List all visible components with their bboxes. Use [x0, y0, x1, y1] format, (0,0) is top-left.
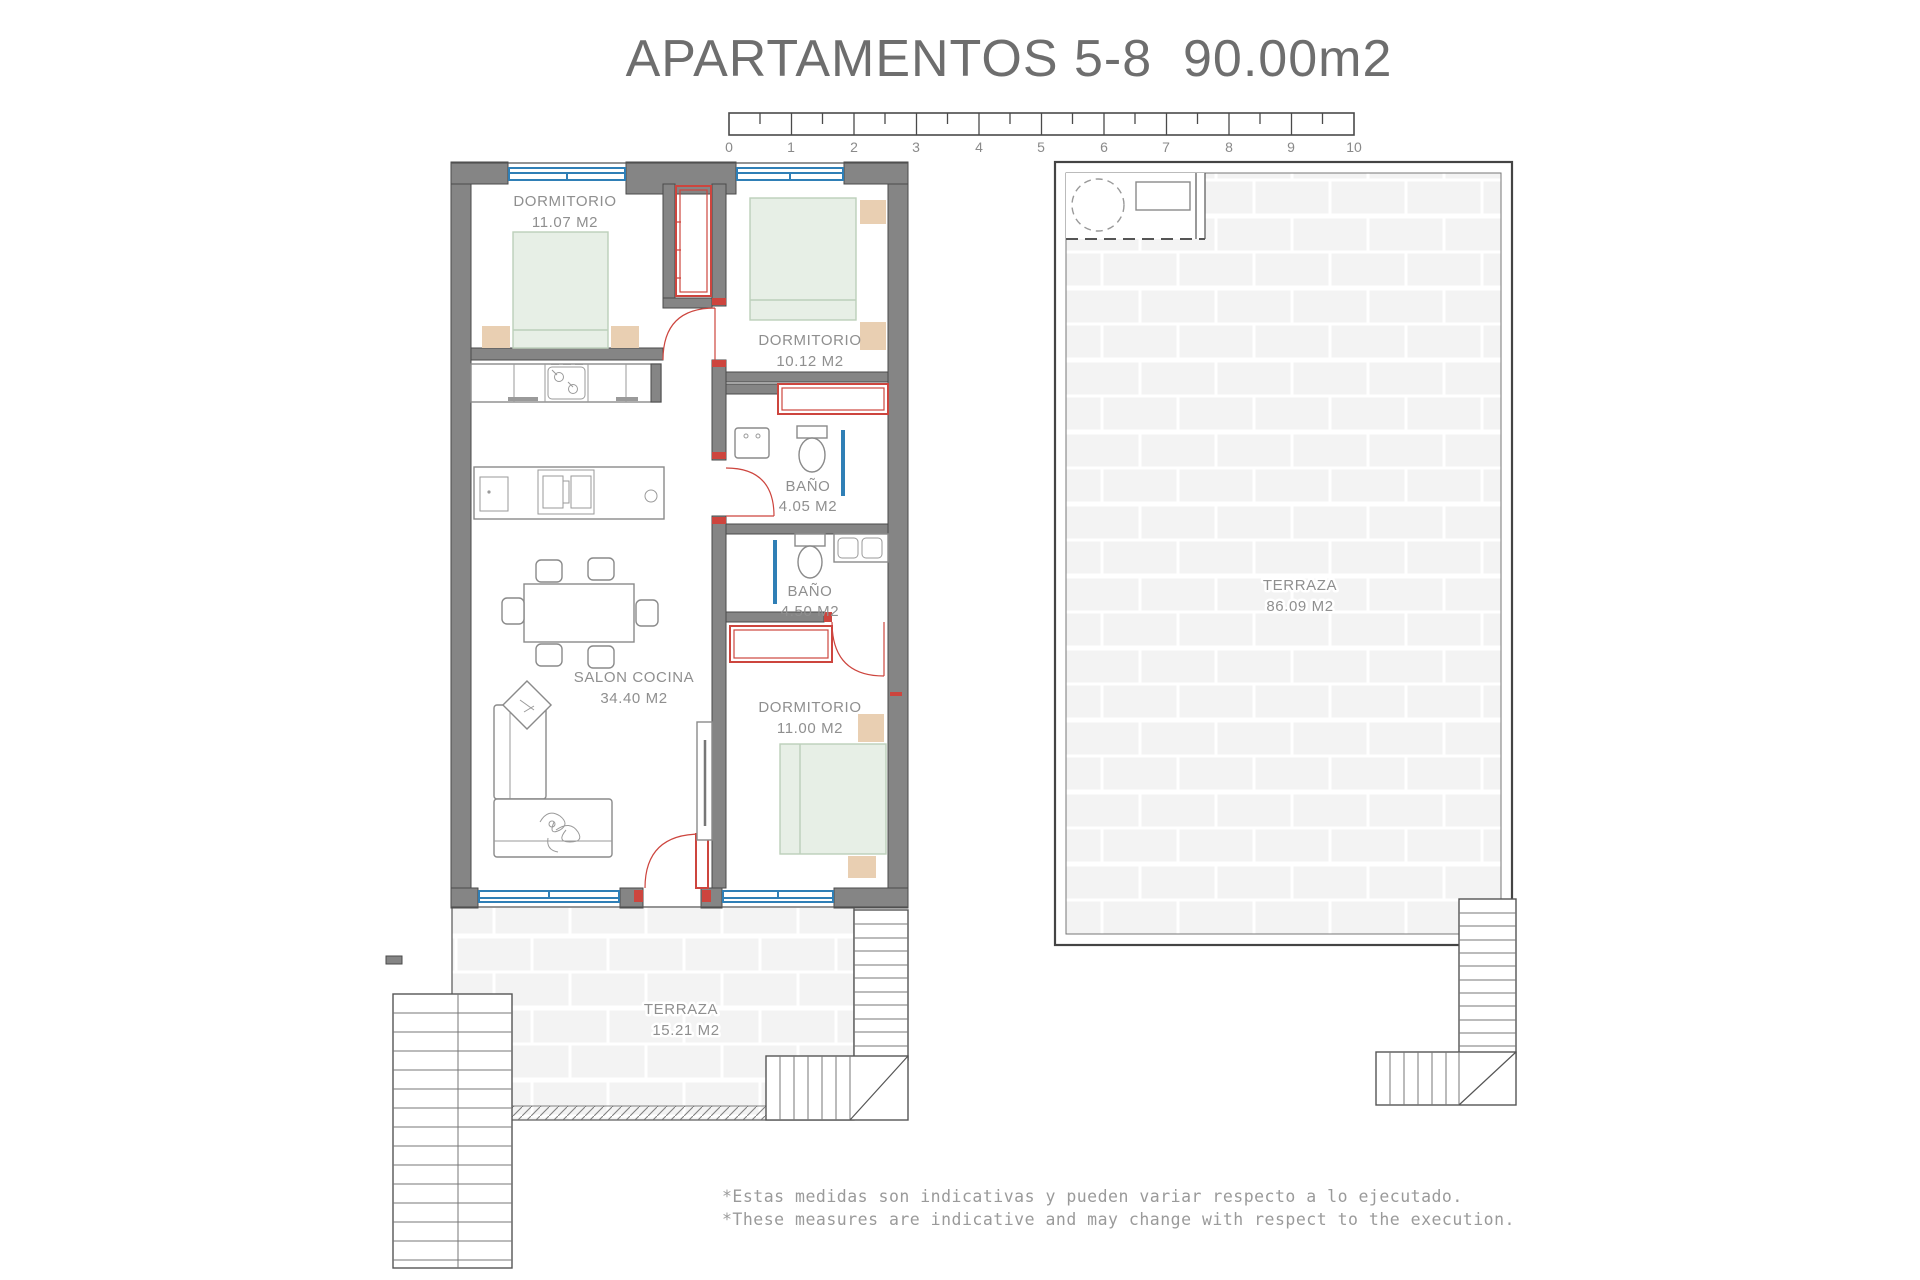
terrace-large: TERRAZA 86.09 M2	[1055, 162, 1512, 945]
nightstand-icon	[858, 714, 884, 742]
utility-box-icon	[1136, 182, 1190, 210]
wall-spine-c	[712, 516, 726, 888]
stairs-exterior-icon	[393, 994, 512, 1268]
chair-icon	[502, 598, 524, 624]
nightstand-icon	[848, 856, 876, 878]
step-marker	[386, 956, 402, 964]
room-label-terraza-small-area: 15.21 M2	[652, 1022, 719, 1039]
scale-tick-label: 4	[975, 139, 983, 155]
nightstand-icon	[860, 200, 886, 224]
table-icon	[524, 584, 634, 642]
room-label-dormitorio3-area: 11.00 M2	[777, 720, 843, 737]
room-label-dormitorio1-area: 11.07 M2	[532, 214, 598, 231]
room-label-bano2-area: 4.50 M2	[781, 603, 839, 620]
room-label-salon-area: 34.40 M2	[600, 690, 667, 707]
wall-bottom-d	[834, 888, 908, 908]
vent-marker	[890, 692, 902, 696]
sofa-icon	[494, 799, 612, 857]
kitchen-island	[474, 467, 664, 519]
hatch-strip	[512, 1106, 768, 1120]
wall-spine-a	[712, 184, 726, 306]
room-label-dormitorio2-area: 10.12 M2	[776, 353, 843, 370]
room-label-dormitorio3-name: DORMITORIO	[758, 699, 861, 716]
kitchen-column	[651, 364, 661, 402]
room-label-dormitorio1-name: DORMITORIO	[513, 193, 616, 210]
stairs-landing-icon	[766, 1056, 908, 1120]
nightstand-icon	[611, 326, 639, 348]
scale-tick-label: 10	[1346, 139, 1362, 155]
chair-icon	[636, 600, 658, 626]
terrace-large-floor	[1066, 173, 1501, 934]
cabinet-handle	[616, 397, 638, 401]
tv-unit	[697, 722, 712, 840]
nightstand-icon	[482, 326, 510, 348]
page-title: APARTAMENTOS 5-8 90.00m2	[626, 30, 1393, 88]
wall-bedroom2-bottom	[726, 372, 888, 382]
footnote-es: *Estas medidas son indicativas y pueden …	[722, 1187, 1463, 1206]
floor-plan-canvas: APARTAMENTOS 5-8 90.00m2 0 1 2 3 4 5 6 7…	[0, 0, 1920, 1280]
room-label-bano1-area: 4.05 M2	[779, 498, 837, 515]
bed-icon	[780, 744, 886, 854]
scale-tick-label: 9	[1287, 139, 1295, 155]
room-label-terraza-large-area: 86.09 M2	[1266, 598, 1333, 615]
wall-stub-bath1	[726, 384, 778, 394]
room-label-terraza-large-name: TERRAZA	[1263, 577, 1337, 594]
room-label-terraza-small-name: TERRAZA	[644, 1001, 718, 1018]
footnote-en: *These measures are indicative and may c…	[722, 1210, 1515, 1229]
scale-tick-label: 8	[1225, 139, 1233, 155]
toilet-icon	[799, 438, 825, 472]
toilet-tank-icon	[795, 534, 825, 546]
page-background	[0, 0, 1920, 1280]
kitchen-counter	[471, 364, 661, 402]
stairs-icon	[1459, 899, 1516, 1059]
wall-bottom-a	[451, 888, 478, 908]
wall-stub-hall	[663, 298, 712, 308]
nightstand-icon	[860, 322, 886, 350]
scale-tick-label: 5	[1037, 139, 1045, 155]
wall-bath1-bottom	[726, 524, 888, 534]
wall-bedroom1-bottom	[471, 348, 663, 360]
scale-tick-label: 2	[850, 139, 858, 155]
scale-tick-label: 7	[1162, 139, 1170, 155]
scale-tick-label: 1	[787, 139, 795, 155]
wall-left	[451, 162, 471, 908]
chair-icon	[588, 646, 614, 668]
bed-icon	[750, 198, 856, 320]
scale-tick-label: 0	[725, 139, 733, 155]
wall-top-a	[451, 162, 508, 184]
room-label-salon-name: SALON COCINA	[574, 669, 695, 686]
toilet-tank-icon	[797, 426, 827, 438]
chair-icon	[588, 558, 614, 580]
room-label-bano2-name: BAÑO	[788, 583, 833, 600]
toilet-icon	[798, 546, 822, 578]
room-label-bano1-name: BAÑO	[786, 478, 831, 495]
wall-top-b	[844, 162, 908, 184]
wall-spine-b	[712, 360, 726, 460]
room-label-dormitorio2-name: DORMITORIO	[758, 332, 861, 349]
chair-icon	[536, 644, 562, 666]
stairs-icon	[854, 910, 908, 1060]
chair-icon	[536, 560, 562, 582]
wall-bedroom1-right	[663, 184, 675, 298]
scale-tick-label: 6	[1100, 139, 1108, 155]
cabinet-handle	[508, 397, 538, 401]
wall-right	[888, 162, 908, 908]
sink-icon	[735, 428, 769, 458]
scale-tick-label: 3	[912, 139, 920, 155]
